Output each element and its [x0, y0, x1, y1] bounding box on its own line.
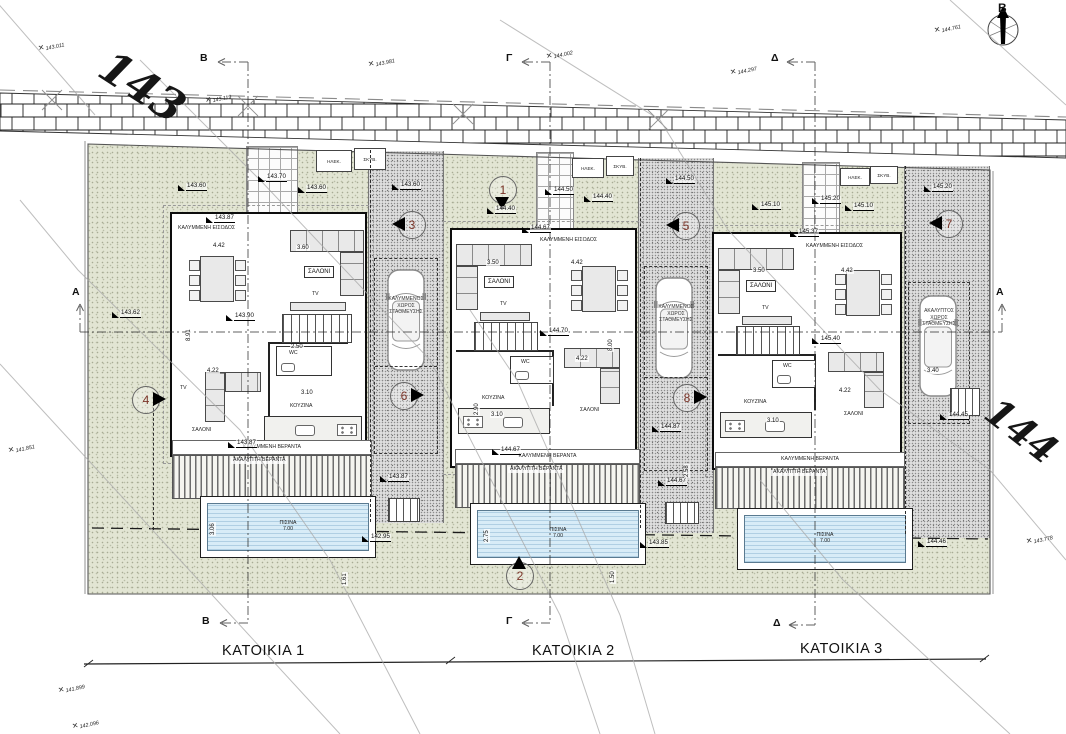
- elevation-label: 145.20: [924, 184, 953, 192]
- spot-elevation: ✕143.981: [367, 55, 395, 69]
- parking-bay-house2: [644, 266, 708, 471]
- house-2-title: ΚΑΤΟΙΚΙΑ 2: [532, 643, 615, 659]
- dimension: 4.42: [840, 268, 854, 274]
- sofa: [340, 252, 364, 296]
- utility-box-electric: ΗΛΕΚ.: [572, 158, 604, 178]
- sofa: [718, 248, 794, 270]
- tv-bench: [480, 312, 530, 321]
- elevation-label: 143.85: [640, 540, 669, 548]
- dimension: 3.60: [296, 245, 310, 251]
- garden-steps-house2: [665, 502, 699, 524]
- tv-label: TV: [180, 386, 187, 392]
- living-room-label: ΣΑΛΟΝΙ: [844, 412, 863, 418]
- tv-bench: [290, 302, 346, 311]
- dimension: 2.58: [684, 464, 690, 478]
- section-letter-a-left: A: [72, 286, 80, 298]
- elevation-label: 145.37: [790, 229, 819, 237]
- dimension: 4.22: [575, 356, 589, 362]
- boundary-dashed: [370, 150, 371, 522]
- wc-label: WC: [783, 364, 792, 370]
- elevation-label: 144.87: [652, 424, 681, 432]
- spot-elevation: ✕144.761: [933, 21, 961, 35]
- view-marker-8: 8: [673, 384, 701, 412]
- garden-steps-house1: [388, 498, 420, 522]
- section-letter-d-bottom: Δ: [773, 617, 781, 629]
- boundary-dashed: [640, 158, 641, 528]
- living-room-label: ΣΑΛΟΝΙ: [580, 408, 599, 414]
- utility-box-electric: ΗΛΕΚ.: [316, 150, 352, 172]
- section-letter-d-top: Δ: [771, 52, 779, 64]
- view-marker-2: 2: [506, 562, 534, 590]
- staircase: [474, 322, 538, 351]
- elevation-label: 144.45: [940, 412, 969, 420]
- parking-label-house3: ΑΚΑΛΥΠΤΟΣΧΩΡΟΣΣΤΑΘΜΕΥΣΗΣ: [910, 308, 968, 328]
- dimension: 1.61: [342, 572, 348, 586]
- section-letter-g-bottom: Γ: [506, 615, 512, 627]
- sofa: [718, 270, 740, 314]
- spot-elevation: ✕141.851: [7, 441, 35, 455]
- wc-room: WC: [510, 356, 554, 384]
- kitchen-label: ΚΟΥΖΙΝΑ: [482, 396, 504, 402]
- elevation-label: 143.90: [226, 313, 255, 321]
- view-marker-5: 5: [672, 212, 700, 240]
- spot-elevation: ✕141.899: [57, 681, 85, 695]
- dimension: 4.42: [212, 243, 226, 249]
- dimension: 1.50: [610, 570, 616, 584]
- kitchen-label: ΚΟΥΖΙΝΑ: [290, 404, 312, 410]
- pool-length: 7.00: [553, 534, 563, 540]
- spot-elevation: ✕143.011: [37, 39, 65, 53]
- tv-label: TV: [762, 306, 769, 312]
- north-letter: B: [998, 1, 1007, 15]
- dimension: 4.22: [838, 388, 852, 394]
- elevation-label: 145.20: [812, 196, 841, 204]
- dimension: 2.90: [474, 402, 480, 416]
- tv-bench: [742, 316, 792, 325]
- elevation-label: 144.40: [584, 194, 613, 202]
- road-number-143: 143: [90, 41, 195, 134]
- house-3-title: ΚΑΤΟΙΚΙΑ 3: [800, 641, 883, 657]
- entrance-label: ΚΑΛΥΜΜΕΝΗ ΕΙΣΟΔΟΣ: [806, 244, 863, 250]
- view-marker-7: 7: [935, 210, 963, 238]
- sofa: [828, 352, 884, 372]
- kitchen-counter: [458, 408, 550, 434]
- covered-veranda-label: ΚΑΛΥΜΜΕΝΗ ΒΕΡΑΝΤΑ: [519, 454, 577, 460]
- dining-table: [582, 266, 616, 312]
- elevation-label: 143.87: [228, 440, 257, 448]
- elevation-label: 143.87: [206, 215, 235, 223]
- view-marker-6: 6: [390, 382, 418, 410]
- spot-elevation: ✕144.002: [545, 47, 573, 61]
- elevation-label: 143.62: [112, 310, 141, 318]
- elevation-label: 144.67: [658, 478, 687, 486]
- sofa: [205, 372, 225, 422]
- boundary-dashed: [905, 166, 906, 534]
- elevation-label: 144.40: [487, 206, 516, 214]
- spot-elevation: ✕142.096: [71, 717, 99, 731]
- living-room-label: ΣΑΛΟΝΙ: [484, 276, 514, 288]
- tv-label: TV: [312, 292, 319, 298]
- living-room-label: ΣΑΛΟΝΙ: [304, 266, 334, 278]
- dimension: 3.50: [752, 268, 766, 274]
- entrance-label: ΚΑΛΥΜΜΕΝΗ ΕΙΣΟΔΟΣ: [540, 238, 597, 244]
- staircase: [282, 314, 352, 343]
- covered-veranda-label: ΚΑΛΥΜΜΕΝΗ ΒΕΡΑΝΤΑ: [781, 457, 839, 463]
- sofa: [456, 266, 478, 310]
- house-3: ΚΑΛΥΜΜΕΝΗ ΕΙΣΟΔΟΣ ΣΑΛΟΝΙ TV WC ΚΟΥΖΙΝΑ Σ…: [712, 232, 902, 470]
- entrance-label: ΚΑΛΥΜΜΕΝΗ ΕΙΣΟΔΟΣ: [178, 226, 235, 232]
- utility-box-electric: ΗΛΕΚ.: [840, 168, 870, 186]
- dimension: 3.06: [210, 522, 216, 536]
- open-veranda-label: ΑΚΑΛΥΠΤΗ ΒΕΡΑΝΤΑ: [508, 467, 564, 473]
- spot-elevation: ✕144.297: [729, 63, 757, 77]
- dining-table: [846, 270, 880, 316]
- pool-house2: ΠΙΣΙΝΑ 7.00: [470, 503, 646, 565]
- spot-elevation: ✕143.778: [1025, 532, 1053, 546]
- parking-label-house1: ΚΑΛΥΜΜΕΝΟΣΧΩΡΟΣΣΤΑΘΜΕΥΣΗΣ: [376, 296, 436, 316]
- wc-label: WC: [521, 360, 530, 366]
- tv-label: TV: [500, 302, 507, 308]
- living-room-label: ΣΑΛΟΝΙ: [746, 280, 776, 292]
- veranda-house1: ΚΑΛΥΜΜΕΝΗ ΒΕΡΑΝΤΑ ΑΚΑΛΥΠΤΗ ΒΕΡΑΝΤΑ: [172, 440, 372, 499]
- staircase: [736, 326, 800, 355]
- parking-bay-house1: [374, 258, 438, 454]
- elevation-label: 144.46: [918, 539, 947, 547]
- boundary-dashed: [153, 398, 154, 530]
- veranda-house2: ΚΑΛΥΜΜΕΝΗ ΒΕΡΑΝΤΑ ΑΚΑΛΥΠΤΗ ΒΕΡΑΝΤΑ: [455, 449, 640, 508]
- pool-house1: ΠΙΣΙΝΑ 7.00: [200, 496, 376, 558]
- dimension: 3.50: [486, 260, 500, 266]
- elevation-label: 144.50: [545, 187, 574, 195]
- pool-length: 7.00: [283, 527, 293, 533]
- spot-elevation: ✕143.119: [204, 91, 232, 105]
- elevation-label: 145.10: [752, 202, 781, 210]
- section-letter-b-bottom: B: [202, 615, 210, 627]
- house-1: ΚΑΛΥΜΜΕΝΗ ΕΙΣΟΔΟΣ ΣΑΛΟΝΙ TV WC ΚΟΥΖΙΝΑ Σ…: [170, 212, 367, 457]
- wc-label: WC: [289, 351, 298, 357]
- view-marker-4: 4: [132, 386, 160, 414]
- elevation-label: 145.10: [845, 203, 874, 211]
- dimension: 2.50: [290, 344, 304, 350]
- dimension: 4.22: [206, 368, 220, 374]
- dining-table: [200, 256, 234, 302]
- sofa: [225, 372, 261, 392]
- elevation-label: 143.60: [178, 183, 207, 191]
- elevation-label: 143.70: [258, 174, 287, 182]
- section-letter-b-top: B: [200, 52, 208, 64]
- wc-room: WC: [276, 346, 332, 376]
- elevation-label: 144.67: [522, 225, 551, 233]
- dimension: 8.00: [608, 338, 614, 352]
- elevation-label: 144.67: [492, 447, 521, 455]
- section-letter-a-right: A: [996, 286, 1004, 298]
- dimension: 3.10: [766, 418, 780, 424]
- elevation-label: 145.40: [812, 336, 841, 344]
- open-veranda-label: ΑΚΑΛΥΠΤΗ ΒΕΡΑΝΤΑ: [771, 470, 827, 476]
- view-marker-3: 3: [398, 211, 426, 239]
- open-veranda-label: ΑΚΑΛΥΠΤΗ ΒΕΡΑΝΤΑ: [231, 458, 287, 464]
- living-room-label: ΣΑΛΟΝΙ: [192, 428, 211, 434]
- pool-length: 7.00: [820, 539, 830, 545]
- elevation-label: 144.70: [540, 328, 569, 336]
- dimension: 8.91: [186, 328, 192, 342]
- elevation-label: 142.95: [362, 534, 391, 542]
- sofa: [864, 372, 884, 408]
- kitchen-label: ΚΟΥΖΙΝΑ: [744, 400, 766, 406]
- utility-box-garbage: ΣΚΥΒ.: [606, 156, 634, 176]
- elevation-label: 144.50: [666, 176, 695, 184]
- elevation-label: 143.60: [392, 182, 421, 190]
- dimension: 3.10: [490, 412, 504, 418]
- parking-label-house2: ΚΑΛΥΜΜΕΝΟΣΧΩΡΟΣΣΤΑΘΜΕΥΣΗΣ: [646, 304, 706, 324]
- elevation-label: 143.87: [380, 474, 409, 482]
- view-marker-1: 1: [489, 176, 517, 204]
- pool-house3: ΠΙΣΙΝΑ 7.00: [737, 508, 913, 570]
- wc-room: WC: [772, 360, 816, 388]
- dimension: 2.75: [484, 529, 490, 543]
- dimension: 3.40: [926, 368, 940, 374]
- veranda-house3: ΚΑΛΥΜΜΕΝΗ ΒΕΡΑΝΤΑ ΑΚΑΛΥΠΤΗ ΒΕΡΑΝΤΑ: [715, 452, 905, 509]
- dimension: 3.10: [300, 390, 314, 396]
- sofa: [600, 368, 620, 404]
- utility-box-garbage: ΣΚΥΒ.: [870, 166, 898, 184]
- house-1-title: ΚΑΤΟΙΚΙΑ 1: [222, 643, 305, 659]
- dimension: 4.42: [570, 260, 584, 266]
- elevation-label: 143.60: [298, 185, 327, 193]
- kitchen-counter: [720, 412, 812, 438]
- kitchen-counter: [264, 416, 362, 442]
- site-plan-drawing: ΚΑΛΥΜΜΕΝΗ ΕΙΣΟΔΟΣ ΣΑΛΟΝΙ TV WC ΚΟΥΖΙΝΑ Σ…: [0, 0, 1066, 734]
- section-letter-g-top: Γ: [506, 52, 512, 64]
